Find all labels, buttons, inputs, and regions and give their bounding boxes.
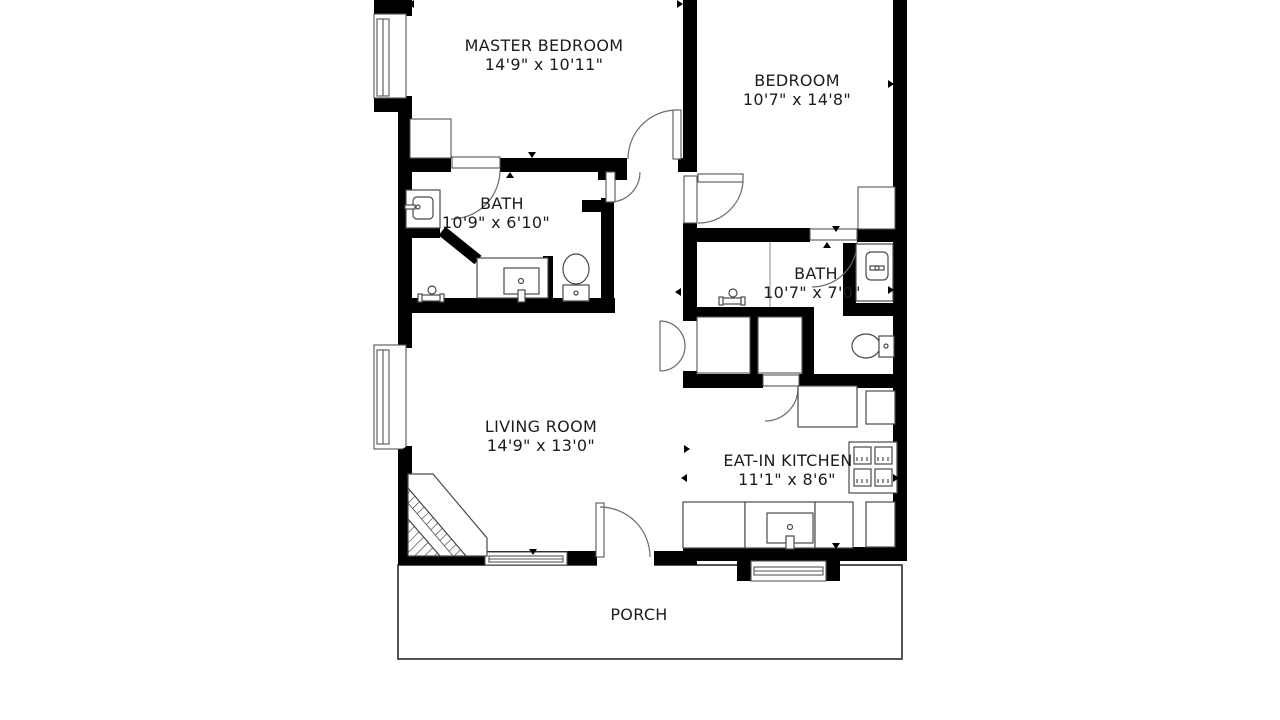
label-bath-hall: BATH <box>794 264 838 283</box>
hall-shower <box>856 244 893 301</box>
hall-closet-2 <box>758 317 802 373</box>
label-living-room: LIVING ROOM <box>485 417 597 436</box>
stove <box>849 442 897 493</box>
bedroom-closet <box>858 187 895 229</box>
hall-closet-1 <box>697 317 750 373</box>
floor-plan-drawing: MASTER BEDROOM 14'9" x 10'11" BEDROOM 10… <box>0 0 1280 720</box>
living-room-window <box>485 552 567 565</box>
kitchen-faucet <box>786 536 794 549</box>
label-bedroom-dims: 10'7" x 14'8" <box>743 90 851 109</box>
label-bath-hall-dims: 10'7" x 7'0" <box>763 283 861 302</box>
master-bedroom-window <box>374 14 406 98</box>
master-shower <box>405 190 440 228</box>
label-master-bedroom: MASTER BEDROOM <box>465 36 624 55</box>
master-vanity-sink <box>477 258 548 302</box>
corner-counter <box>866 391 895 424</box>
floor-plan-page: MASTER BEDROOM 14'9" x 10'11" BEDROOM 10… <box>0 0 1280 720</box>
hall-toilet <box>852 334 894 358</box>
master-toilet <box>563 254 589 301</box>
master-bedroom-closet <box>410 119 451 158</box>
refrigerator <box>798 386 857 427</box>
label-living-room-dims: 14'9" x 13'0" <box>487 436 595 455</box>
label-eat-in-kitchen-dims: 11'1" x 8'6" <box>738 470 836 489</box>
label-porch: PORCH <box>610 605 667 624</box>
label-bedroom: BEDROOM <box>754 71 840 90</box>
label-bath-master: BATH <box>480 194 524 213</box>
label-bath-master-dims: 10'9" x 6'10" <box>442 213 550 232</box>
label-master-bedroom-dims: 14'9" x 10'11" <box>485 55 604 74</box>
living-room-bay-window <box>374 345 406 449</box>
label-eat-in-kitchen: EAT-IN KITCHEN <box>723 451 852 470</box>
